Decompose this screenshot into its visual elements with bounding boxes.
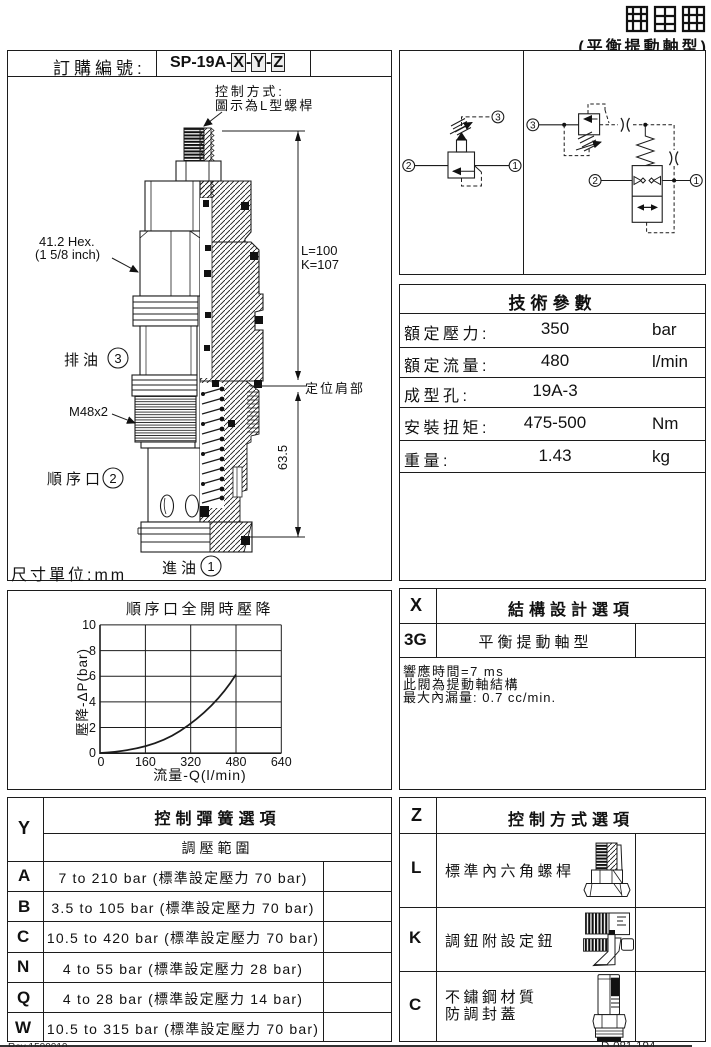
- svg-text:6: 6: [89, 669, 96, 683]
- svg-text:8: 8: [89, 644, 96, 658]
- svg-text:2: 2: [89, 721, 96, 735]
- svg-text:2: 2: [406, 161, 412, 172]
- svg-text:4: 4: [89, 695, 96, 709]
- svg-text:320: 320: [180, 755, 201, 769]
- svg-text:3: 3: [495, 113, 501, 124]
- svg-text:3: 3: [114, 351, 121, 366]
- svg-text:480: 480: [226, 755, 247, 769]
- svg-text:2: 2: [592, 176, 598, 187]
- svg-text:0: 0: [98, 755, 105, 769]
- svg-text:10: 10: [82, 618, 96, 632]
- svg-text:1: 1: [207, 559, 214, 574]
- svg-text:640: 640: [271, 755, 292, 769]
- svg-text:3: 3: [530, 120, 536, 131]
- svg-text:1: 1: [512, 161, 518, 172]
- svg-text:160: 160: [135, 755, 156, 769]
- svg-text:0: 0: [89, 746, 96, 760]
- svg-text:1: 1: [694, 176, 700, 187]
- svg-text:2: 2: [109, 471, 116, 486]
